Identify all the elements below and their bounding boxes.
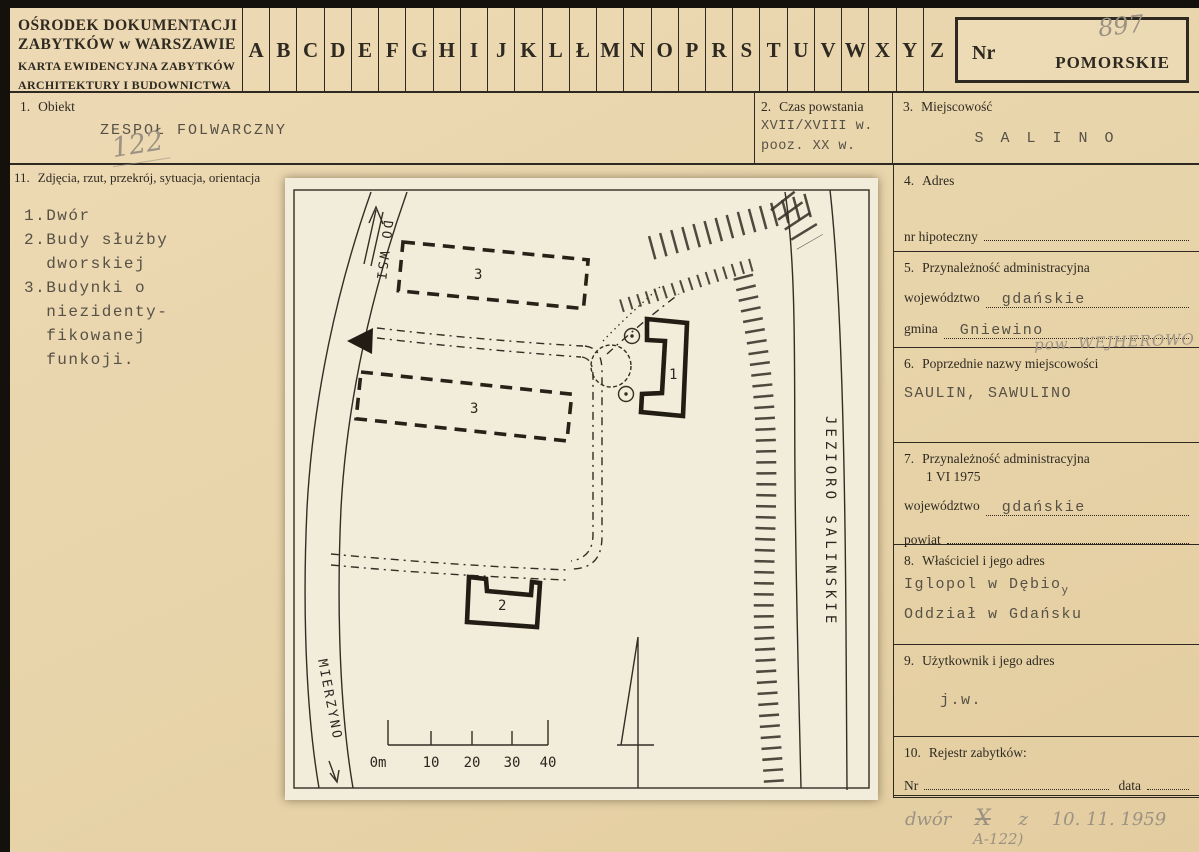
field-3-number: 3. — [903, 99, 913, 114]
scale-tick-0: 0m — [370, 755, 387, 771]
building-3a-number: 3 — [474, 267, 482, 283]
building-1-outline — [641, 319, 687, 416]
field-2-number: 2. — [761, 99, 771, 114]
driveway-upper-2 — [377, 338, 581, 357]
scale-tick-30: 30 — [504, 755, 521, 771]
alphabet-letter: V — [814, 8, 841, 93]
field-6-poprzednie-nazwy: 6.Poprzednie nazwy miejscowości SAULIN, … — [894, 348, 1199, 443]
scale-bar — [388, 720, 548, 745]
driveway-lower-2 — [331, 565, 567, 580]
alphabet-letter: R — [705, 8, 732, 93]
driveway-lower-1 — [331, 554, 569, 570]
alphabet-letter: K — [514, 8, 541, 93]
org-name-line2: ZABYTKÓW w WARSZAWIE — [18, 35, 242, 54]
field-9-uzytkownik: 9.Użytkownik i jego adres j.w. — [894, 645, 1199, 737]
field-5-row1-value: gdańskie — [1002, 291, 1086, 308]
field-5-label: Przynależność administracyjna — [922, 260, 1090, 275]
site-plan-drawing: DO WSI MIERZYNO JEZIORO SALINSKIE 1 2 3 … — [285, 178, 878, 800]
field-5-number: 5. — [904, 260, 914, 275]
field-11-number: 11. — [14, 170, 30, 185]
field-1-pencil-number: 122 — [108, 125, 170, 168]
building-3a-outline — [398, 242, 588, 309]
alphabet-letter: U — [787, 8, 814, 93]
field-7-row1-value: gdańskie — [1002, 499, 1086, 516]
building-3b-outline — [356, 372, 572, 441]
slope-hatch-shore — [743, 276, 774, 784]
alphabet-letter: T — [759, 8, 786, 93]
field-4-label: Adres — [922, 173, 954, 188]
building-1-number: 1 — [669, 367, 677, 383]
field-1-obiekt: 1.Obiekt ZESPOŁ FOLWARCZNY 122 — [10, 93, 755, 165]
field-3-value: S A L I N O — [903, 130, 1189, 147]
entrance-marker — [347, 328, 373, 354]
field-3-miejscowosc: 3.Miejscowość S A L I N O — [893, 93, 1199, 165]
scale-tick-10: 10 — [423, 755, 440, 771]
field-10-nr-blank — [924, 775, 1108, 790]
alphabet-letter: B — [269, 8, 296, 93]
path-dotted — [603, 286, 661, 341]
registry-pencil-date: 10. 11. 1959 — [1052, 809, 1167, 830]
field-2-label: Czas powstania — [779, 99, 863, 114]
field-1-value: ZESPOŁ FOLWARCZNY — [100, 122, 744, 139]
field-8-subscript: y — [1062, 585, 1070, 597]
header-institution: OŚRODEK DOKUMENTACJI ZABYTKÓW w WARSZAWI… — [10, 8, 243, 93]
field-10-data-blank — [1147, 775, 1189, 790]
field-7-date: 1 VI 1975 — [926, 469, 1189, 485]
scale-tick-40: 40 — [540, 755, 557, 771]
field-9-number: 9. — [904, 653, 914, 668]
field-9-label: Użytkownik i jego adres — [922, 653, 1054, 668]
field-4-adres: 4.Adres nr hipoteczny — [894, 165, 1199, 252]
field-5-row2-label: gmina — [904, 321, 938, 337]
driveway-loop-inner — [571, 357, 593, 561]
road-label-bottom: MIERZYNO — [314, 658, 344, 742]
right-column: 4.Adres nr hipoteczny 5.Przynależność ad… — [893, 165, 1199, 798]
alphabet-letter: L — [542, 8, 569, 93]
site-plan-photo: DO WSI MIERZYNO JEZIORO SALINSKIE 1 2 3 … — [285, 178, 878, 800]
scan-background: { "header": { "org_line1": "OŚRODEK DOKU… — [0, 0, 1199, 852]
north-arrow — [617, 637, 654, 788]
alphabet-letter: G — [405, 8, 432, 93]
field-10-label: Rejestr zabytków: — [929, 745, 1027, 760]
field-10-number: 10. — [904, 745, 921, 760]
field-3-label: Miejscowość — [921, 99, 992, 114]
card-title-line1: KARTA EWIDENCYJNA ZABYTKÓW — [18, 59, 242, 74]
field-10-nr-label: Nr — [904, 778, 918, 794]
nr-pencil-value: 897 — [1097, 10, 1145, 43]
scale-tick-20: 20 — [464, 755, 481, 771]
tree-dot-2 — [624, 392, 627, 395]
field-2-czas-powstania: 2.Czas powstania XVII/XVIII w. pooz. XX … — [755, 93, 893, 165]
field-8-label: Właściciel i jego adres — [922, 553, 1045, 568]
site-plan-legend: 1.Dwór 2.Budy służby dworskiej 3.Budynki… — [24, 204, 168, 372]
field-5-row1-label: województwo — [904, 290, 980, 306]
field-11-caption: 11.Zdjęcia, rzut, przekrój, sytuacja, or… — [14, 170, 314, 186]
alphabet-letter: W — [841, 8, 868, 93]
field-8-value-line1: Iglopol w Dębioy — [904, 574, 1189, 600]
registry-pencil-crossed: X — [975, 806, 991, 831]
driveway-upper-1 — [377, 328, 583, 346]
alphabet-letter: H — [433, 8, 460, 93]
field-1-label: Obiekt — [38, 99, 75, 114]
registry-pencil-note: dwór X z 10. 11. 1959 A-122) — [905, 806, 1199, 852]
field-2-value-line2: pooz. XX w. — [761, 138, 886, 156]
field-10-data-label: data — [1119, 778, 1142, 794]
field-7-number: 7. — [904, 451, 914, 466]
voivodeship-stamp: POMORSKIE — [1055, 53, 1170, 73]
alphabet-letter: Ł — [569, 8, 596, 93]
field-5-przynaleznosc: 5.Przynależność administracyjna wojewódz… — [894, 252, 1199, 348]
nr-label: Nr — [972, 42, 995, 65]
alphabet-letter: J — [487, 8, 514, 93]
field-4-number: 4. — [904, 173, 914, 188]
alphabet-letter: X — [868, 8, 895, 93]
alphabet-letter: O — [651, 8, 678, 93]
alphabet-strip: ABCDEFGHIJKLŁMNOPRSTUVWXYZ — [243, 8, 950, 93]
field-1-number: 1. — [20, 99, 30, 114]
registry-pencil-word: dwór — [905, 809, 951, 830]
field-8-number: 8. — [904, 553, 914, 568]
field-8-value-line2: Oddział w Gdańsku — [904, 604, 1189, 626]
field-4-sublabel: nr hipoteczny — [904, 229, 978, 245]
field-4-blank-line — [984, 226, 1189, 241]
alphabet-letter: A — [243, 8, 269, 93]
field-8-wlasciciel: 8.Właściciel i jego adres Iglopol w Dębi… — [894, 545, 1199, 645]
nr-box: Nr 897 POMORSKIE — [955, 17, 1189, 83]
slope-hatch-middle — [621, 264, 755, 306]
field-7-label: Przynależność administracyjna — [922, 451, 1090, 466]
registry-pencil-conj: z — [1019, 809, 1028, 830]
field-2-value-line1: XVII/XVIII w. — [761, 118, 886, 136]
alphabet-letter: I — [460, 8, 487, 93]
tree-dot-1 — [630, 334, 633, 337]
field-6-number: 6. — [904, 356, 914, 371]
alphabet-letter: M — [596, 8, 623, 93]
road-right-edge — [339, 192, 407, 788]
road-arrow-bottom — [329, 761, 339, 782]
road-label-top: DO WSI — [372, 220, 394, 283]
field-5-row2-value: Gniewino — [960, 322, 1044, 339]
alphabet-letter: Z — [923, 8, 950, 93]
field-9-value: j.w. — [940, 692, 1189, 709]
field-11-label: Zdjęcia, rzut, przekrój, sytuacja, orien… — [38, 170, 260, 185]
alphabet-letter: P — [678, 8, 705, 93]
road-left-edge — [305, 192, 371, 788]
record-card: OŚRODEK DOKUMENTACJI ZABYTKÓW w WARSZAWI… — [10, 8, 1199, 852]
alphabet-letter: E — [351, 8, 378, 93]
field-6-value: SAULIN, SAWULINO — [904, 383, 1189, 405]
building-2-number: 2 — [498, 598, 506, 614]
org-name-line1: OŚRODEK DOKUMENTACJI — [18, 16, 242, 35]
driveway-loop-outer — [573, 346, 602, 569]
alphabet-letter: Y — [896, 8, 923, 93]
slope-hatch-corner — [782, 200, 810, 242]
field-6-label: Poprzednie nazwy miejscowości — [922, 356, 1098, 371]
building-3b-number: 3 — [470, 401, 478, 417]
alphabet-letter: C — [296, 8, 323, 93]
alphabet-letter: N — [623, 8, 650, 93]
alphabet-letter: F — [378, 8, 405, 93]
field-7-row1-label: województwo — [904, 498, 980, 514]
alphabet-letter: S — [732, 8, 759, 93]
card-title-line2: ARCHITEKTURY I BUDOWNICTWA — [18, 78, 242, 93]
alphabet-letter: D — [324, 8, 351, 93]
registry-pencil-ref: A-122) — [973, 830, 1023, 848]
lake-label: JEZIORO SALINSKIE — [822, 416, 838, 627]
field-10-rejestr: 10.Rejestr zabytków: Nrdata — [894, 737, 1199, 798]
lake-shore-inner — [785, 192, 801, 788]
field-7-przynaleznosc-1975: 7.Przynależność administracyjna 1 VI 197… — [894, 443, 1199, 545]
